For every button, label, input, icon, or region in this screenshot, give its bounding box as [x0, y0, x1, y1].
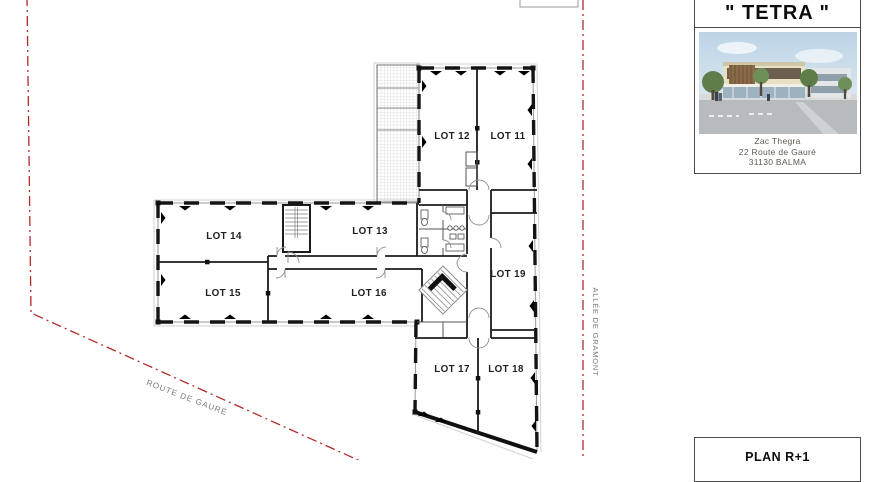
staircase-straight — [283, 205, 310, 252]
project-address: Zac Thegra 22 Route de Gauré 31130 BALMA — [695, 136, 860, 168]
lot-label-11: LOT 11 — [490, 131, 525, 142]
room-lot-16 — [268, 269, 422, 322]
title-divider — [695, 27, 860, 28]
lot-label-12: LOT 12 — [434, 131, 470, 142]
street-label-route-de-gaure: ROUTE DE GAURÉ — [145, 378, 229, 417]
plan-title: PLAN R+1 — [695, 450, 860, 464]
building-photo — [699, 32, 857, 134]
lot-label-13: LOT 13 — [352, 226, 388, 237]
terrace-hatched — [377, 65, 419, 202]
title-block: " TETRA " Zac Thegra 2 — [694, 0, 861, 174]
lot-label-15: LOT 15 — [205, 288, 241, 299]
lot-label-17: LOT 17 — [434, 364, 470, 375]
address-line-1: Zac Thegra — [695, 136, 860, 147]
address-line-2: 22 Route de Gauré — [695, 147, 860, 158]
project-title: " TETRA " — [695, 2, 860, 25]
room-lot-18 — [478, 338, 537, 433]
address-line-3: 31130 BALMA — [695, 157, 860, 168]
room-lot-17 — [415, 338, 478, 433]
neighbour-structure — [520, 0, 578, 7]
room-lot-11 — [477, 68, 533, 190]
lot-label-18: LOT 18 — [488, 364, 524, 375]
lot-label-19: LOT 19 — [490, 269, 526, 280]
lot-label-16: LOT 16 — [351, 288, 387, 299]
street-label-allee-de-gramont: ALLÉE DE GRAMONT — [591, 287, 600, 376]
lot-label-14: LOT 14 — [206, 231, 242, 242]
room-lot-12 — [419, 68, 477, 190]
